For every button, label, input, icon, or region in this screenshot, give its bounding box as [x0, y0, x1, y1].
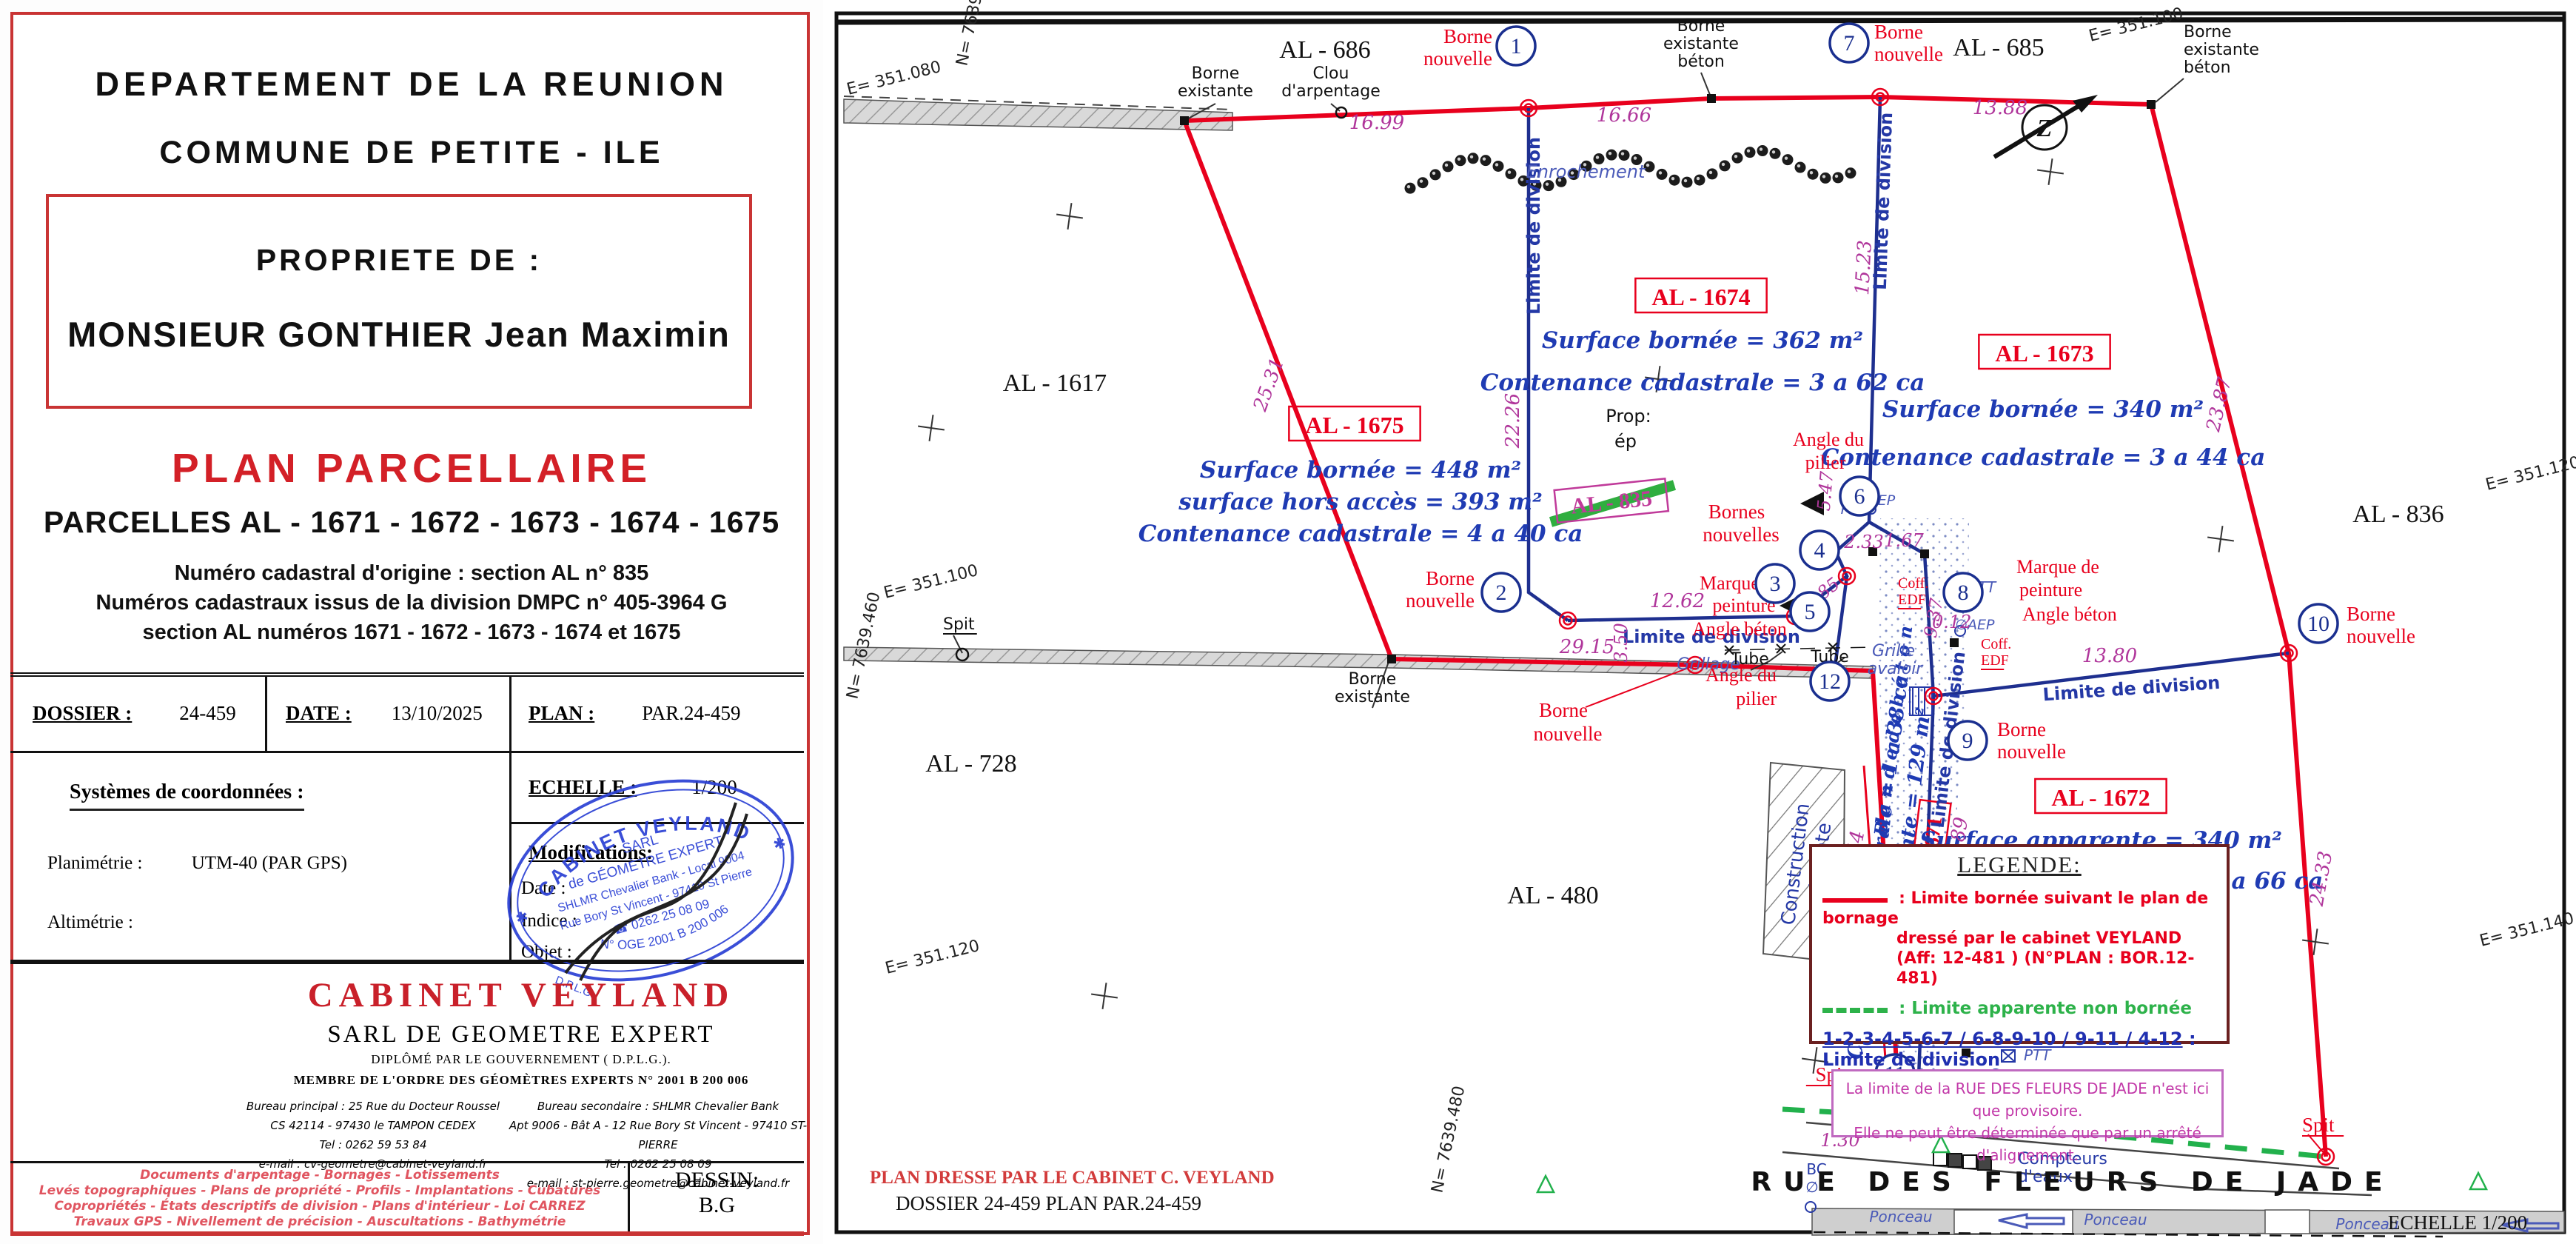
legend-red-text3: (Aff: 12-481 ) (N°PLAN : BOR.12-481)	[1896, 949, 2219, 989]
plan-label: nouvelle	[1406, 589, 1475, 612]
enrochement-stone	[1506, 168, 1517, 179]
plan-label: Bornes	[1708, 501, 1765, 523]
plan-label: Borne	[1677, 17, 1725, 36]
cadastral-section: section AL numéros 1671 - 1672 - 1673 - …	[0, 621, 823, 645]
plan-label: EDF	[1981, 652, 2009, 669]
dossier-label: DOSSIER :	[33, 702, 132, 724]
stamp-star-left: ✱	[514, 909, 530, 928]
plan-label: Spit	[2302, 1114, 2335, 1136]
plan-label: nouvelle	[1874, 43, 1943, 65]
enrochement-stone	[1606, 150, 1617, 161]
stamp-star-right: ✱	[771, 835, 788, 854]
plan-label: 22.26	[1502, 393, 1524, 449]
parcelles-line: PARCELLES AL - 1671 - 1672 - 1673 - 1674…	[0, 505, 823, 540]
firm-diploma: DIPLÔMÉ PAR LE GOUVERNEMENT ( D.P.L.G.).	[240, 1052, 802, 1067]
plan-label: existante	[1335, 688, 1410, 706]
plan-label: Spit	[943, 615, 975, 634]
services-line: Levés topographiques - Plans de propriét…	[10, 1183, 629, 1199]
enrochement-stone	[1707, 168, 1718, 179]
owner-name: MONSIEUR GONTHIER Jean Maximin	[49, 314, 749, 355]
cadastral-dmpc: Numéros cadastraux issus de la division …	[0, 591, 823, 615]
plan-label: Coff.	[1981, 636, 2011, 652]
enrochement-stone	[1682, 177, 1693, 188]
coord-header: Systèmes de coordonnées :	[70, 780, 304, 811]
note-line2: Elle ne peut être déterminée que par un …	[1834, 1122, 2221, 1166]
scanned-plan-page: DEPARTEMENT DE LA REUNION COMMUNE DE PET…	[0, 0, 2576, 1244]
legend-red-text1: : Limite bornée suivant le plan de borna…	[1822, 889, 2208, 928]
firm-subtitle: SARL DE GEOMETRE EXPERT	[240, 1021, 802, 1049]
legend-red-text2: dressé par le cabinet VEYLAND	[1896, 929, 2219, 949]
dessin-value: B.G	[630, 1193, 804, 1218]
plan-label: AL - 480	[1507, 882, 1598, 909]
enrochement-stone	[1405, 183, 1416, 194]
plan-label: existante	[1178, 82, 1253, 101]
svg-text:7: 7	[1844, 31, 1855, 56]
plan-label: Borne	[1192, 64, 1240, 83]
enrochement-stone	[1770, 148, 1781, 159]
propriete-label: PROPRIETE DE :	[49, 243, 749, 278]
plan-label: Angle béton	[1692, 618, 1787, 640]
services-row: Documents d'arpentage - Bornages - Lotis…	[10, 1161, 804, 1231]
firm-footer: GEOMETRE–EXPERT CONSEILLER VALORISER GAR…	[10, 960, 804, 1163]
legend-green-text: : Limite apparente non bornée	[1899, 999, 2192, 1018]
plan-label: Clou	[1313, 64, 1349, 83]
enrochement-stone	[1732, 153, 1743, 164]
point-marker	[1950, 638, 1959, 647]
bottom-red-rule	[10, 1231, 804, 1236]
note-line1: La limite de la RUE DES FLEURS DE JADE n…	[1834, 1077, 2221, 1122]
plan-label: 13.80	[2082, 645, 2137, 667]
plan-label: AL - 728	[925, 750, 1016, 777]
plan-label: Prop:	[1606, 406, 1651, 427]
plan-label: pilier	[1805, 452, 1846, 473]
propriete-box: PROPRIETE DE : MONSIEUR GONTHIER Jean Ma…	[46, 194, 752, 409]
svg-text:5: 5	[1805, 600, 1816, 624]
plan-parcellaire-title: PLAN PARCELLAIRE	[0, 444, 823, 492]
firm-name: CABINET VEYLAND	[240, 975, 802, 1015]
plan-label: surface hors accès = 393 m²	[1178, 489, 1542, 515]
plan-label: 0.12	[1932, 612, 1971, 632]
enrochement-stone	[1468, 153, 1479, 164]
commune-title: COMMUNE DE PETITE - ILE	[0, 135, 823, 171]
plan-label: Ponceau	[2084, 1211, 2147, 1228]
dessin-label: DESSIN:	[630, 1168, 804, 1193]
table-divider	[265, 677, 267, 751]
svg-text:6: 6	[1854, 484, 1865, 509]
enrochement-stone	[1694, 175, 1705, 186]
enrochement-stone	[1657, 169, 1668, 180]
enrochement-stone	[1833, 172, 1844, 183]
plan-label: nouvelle	[1534, 723, 1603, 745]
dossier-value: 24-459	[179, 702, 236, 724]
plan-label: AL - 1672	[2051, 784, 2150, 811]
plan-label: Borne	[2347, 603, 2395, 625]
plan-label: avaloir	[1868, 660, 1925, 678]
point-marker	[2147, 100, 2156, 109]
plan-label: Enrochement	[1526, 161, 1646, 182]
plan-label: AL - 686	[1279, 36, 1370, 64]
plan-label: Surface bornée = 340 m²	[1882, 396, 2204, 423]
plan-label: Borne	[1349, 670, 1397, 689]
plan-label: 16.66	[1597, 104, 1651, 127]
plan-label: Contenance cadastrale = 3 a 62 ca	[1480, 369, 1925, 396]
plan-label: nouvelle	[1423, 47, 1492, 70]
plan-label: Tube	[1730, 650, 1769, 669]
plan-label: ép	[1614, 431, 1637, 452]
plan-label: Coff.	[1898, 575, 1928, 592]
plan-label: nouvelle	[2347, 625, 2415, 647]
svg-text:1: 1	[1511, 34, 1522, 58]
plan-label: AL - 685	[1953, 34, 2044, 61]
enrochement-stone	[1619, 150, 1630, 161]
services-line: Documents d'arpentage - Bornages - Lotis…	[10, 1168, 629, 1183]
enrochement-stone	[1480, 155, 1492, 166]
plan-label: Borne	[2184, 23, 2232, 41]
plan-label: RUE DES FLEURS DE JADE	[1751, 1167, 2394, 1197]
legend-box: LEGENDE: : Limite bornée suivant le plan…	[1809, 844, 2230, 1044]
plan-label: Surface bornée = 448 m²	[1200, 457, 1521, 484]
plan-label: Borne	[1874, 21, 1923, 43]
enrochement-stone	[1845, 167, 1856, 178]
plan-panel: Z AL - 686AL - 685AL - 1617AL - 836AL - …	[823, 0, 2576, 1244]
plan-label: Borne	[1539, 699, 1588, 721]
point-marker	[1180, 116, 1189, 125]
enrochement-stone	[1430, 169, 1441, 180]
enrochement-stone	[1455, 155, 1466, 166]
plan-label: Contenance cadastrale = 3 a 44 ca	[1821, 444, 2266, 471]
point-marker	[1707, 94, 1716, 103]
enrochement-stone	[1782, 154, 1794, 165]
enrochement-stone	[1720, 160, 1731, 171]
svg-text:10: 10	[2307, 612, 2330, 636]
table-divider	[10, 751, 804, 753]
plani-value: UTM-40 (PAR GPS)	[192, 853, 347, 873]
svg-text:2: 2	[1496, 581, 1507, 605]
plan-label: Ponceau	[1869, 1208, 1932, 1225]
plan-label: 1.67	[1884, 530, 1924, 551]
plan-label: 29.15	[1559, 636, 1614, 658]
enrochement-stone	[1493, 161, 1504, 172]
plan-value: PAR.24-459	[642, 702, 740, 724]
plan-label: béton	[2184, 58, 2231, 77]
plan-label: Surface bornée = 362 m²	[1542, 327, 1863, 354]
alti-label: Altimétrie :	[47, 912, 133, 933]
dessin-box: DESSIN: B.G	[628, 1163, 804, 1231]
plan-label: AL - 1673	[1995, 340, 2093, 367]
svg-text:3: 3	[1770, 572, 1781, 596]
plan-label: 2.33	[1843, 532, 1883, 552]
plan-label: nouvelle	[1997, 740, 2066, 763]
enrochement-stone	[1745, 147, 1756, 158]
enrochement-stone	[1644, 161, 1655, 173]
legend-division-links: 1-2-3-4-5-6-7 / 6-8-9-10 / 9-11 / 4-12	[1822, 1029, 2183, 1049]
services-line: Travaux GPS - Nivellement de précision -…	[10, 1214, 629, 1230]
enrochement-stone	[1443, 161, 1454, 172]
plan-label: d'arpentage	[1281, 82, 1381, 101]
legend-red-line-sample	[1822, 898, 1888, 903]
plan-label: pilier	[1736, 688, 1777, 709]
plan-label: PLAN DRESSE PAR LE CABINET C. VEYLAND	[870, 1168, 1275, 1188]
svg-text:4: 4	[1814, 538, 1825, 563]
date-label: DATE :	[286, 702, 352, 724]
plan-label: 12.62	[1650, 590, 1705, 612]
plan-label: Grille	[1872, 642, 1915, 661]
plan-label: Borne	[1426, 567, 1475, 589]
svg-text:8: 8	[1958, 581, 1969, 605]
provisional-note: La limite de la RUE DES FLEURS DE JADE n…	[1831, 1069, 2224, 1137]
plan-label: 13.88	[1973, 97, 2027, 119]
plan-label: AL - 836	[2352, 501, 2443, 528]
legend-title: LEGENDE:	[1812, 852, 2227, 878]
plan-label: Borne	[1443, 25, 1492, 47]
point-marker	[1387, 655, 1396, 663]
plan-label: 15.23	[1851, 240, 1876, 296]
plan-label: Borne	[1997, 718, 2046, 740]
svg-text:12: 12	[1819, 669, 1841, 694]
svg-text:Z: Z	[2036, 115, 2053, 142]
plan-label: 16.99	[1349, 112, 1404, 134]
plan-label: AL - 1675	[1305, 412, 1403, 438]
plan-label: existante	[1663, 35, 1739, 53]
plan-label: AL - 1674	[1651, 284, 1750, 310]
svg-text:9: 9	[1962, 729, 1973, 753]
plan-label: ECHELLE 1/200	[2388, 1211, 2527, 1234]
plan-label: nouvelles	[1703, 524, 1779, 546]
enrochement-stone	[1418, 177, 1429, 188]
firm-ordre: MEMBRE DE L'ORDRE DES GÉOMÈTRES EXPERTS …	[240, 1073, 802, 1088]
plan-label: béton	[1677, 53, 1725, 71]
plan-label: Marque de	[2016, 556, 2099, 578]
plan-label: Angle du	[1793, 429, 1864, 450]
plan-label: Contenance cadastrale = 4 a 40 ca	[1138, 521, 1583, 547]
legend-green-line-sample	[1822, 1008, 1888, 1013]
plan-label: DOSSIER 24-459 PLAN PAR.24-459	[896, 1192, 1201, 1214]
date-value: 13/10/2025	[392, 702, 483, 724]
enrochement-stone	[1757, 145, 1768, 156]
title-block-panel: DEPARTEMENT DE LA REUNION COMMUNE DE PET…	[0, 0, 823, 1244]
plan-label: AL - 1617	[1003, 369, 1107, 397]
departement-title: DEPARTEMENT DE LA REUNION	[0, 65, 823, 104]
enrochement-stone	[1669, 175, 1680, 186]
services-line: Copropriétés - États descriptifs de divi…	[10, 1199, 629, 1214]
plan-label: Angle béton	[2022, 603, 2117, 625]
enrochement-stone	[1808, 169, 1819, 180]
plan-label: 5.47	[1814, 470, 1838, 512]
plan-label: EDF	[1898, 592, 1926, 608]
plan-label: existante	[2184, 41, 2259, 59]
plan-label: PLAN :	[529, 702, 594, 724]
cadastral-plan-drawing: Z AL - 686AL - 685AL - 1617AL - 836AL - …	[823, 0, 2576, 1244]
plan-label: peinture	[2019, 579, 2082, 601]
dossier-table: DOSSIER : 24-459 DATE : 13/10/2025 PLAN …	[10, 672, 804, 964]
cadastral-origin: Numéro cadastral d'origine : section AL …	[0, 561, 823, 586]
plani-label: Planimétrie :	[47, 853, 142, 873]
enrochement-stone	[1820, 173, 1831, 184]
enrochement-stone	[1795, 162, 1806, 173]
